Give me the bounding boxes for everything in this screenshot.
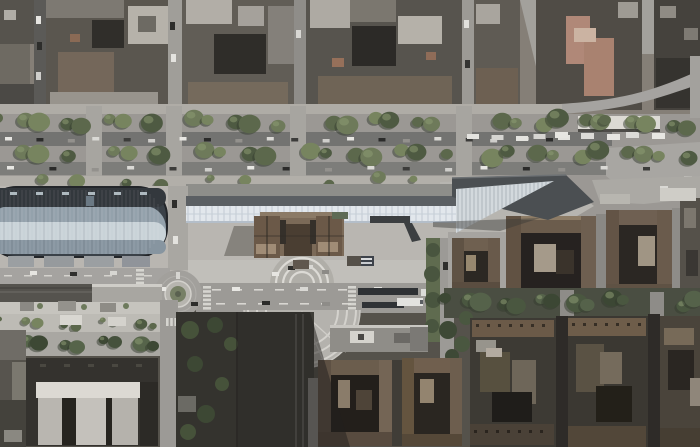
crossing-street (86, 106, 102, 176)
17 (92, 168, 99, 172)
5 (534, 134, 546, 139)
big-block-tower (38, 398, 62, 445)
hall-annex (8, 256, 34, 267)
5 (467, 134, 479, 139)
17 (445, 168, 452, 172)
9-highlight (137, 320, 142, 324)
green-roof-sliver (332, 212, 348, 219)
5 (555, 132, 568, 138)
7 (572, 323, 575, 326)
hall-roof-lower (0, 240, 166, 254)
block-roof (506, 216, 521, 300)
30-highlight (273, 121, 280, 126)
32-highlight (636, 148, 645, 155)
courtyard (92, 20, 124, 48)
30-highlight (230, 116, 238, 122)
7 (638, 323, 641, 326)
32 (148, 146, 170, 165)
6 (114, 192, 121, 195)
5 (581, 133, 594, 139)
old-station-gap (310, 220, 316, 244)
big-block-tower (112, 398, 138, 445)
32 (653, 151, 665, 161)
courtyard-dark (556, 250, 574, 274)
32-highlight (197, 144, 206, 151)
car (465, 60, 470, 68)
17 (127, 166, 134, 170)
roof-light (398, 16, 442, 44)
32-highlight (683, 152, 691, 158)
roof-mid (268, 6, 294, 64)
rooftop-door (358, 334, 364, 340)
roof-white (660, 188, 696, 201)
car (232, 287, 240, 291)
20 (92, 137, 99, 141)
30 (141, 114, 163, 133)
32-highlight (63, 151, 70, 156)
lane-dash (104, 275, 112, 277)
6 (140, 192, 147, 195)
yard-structure (58, 301, 76, 311)
shadow-tree (215, 377, 229, 391)
courtyard-building (534, 244, 556, 272)
20 (235, 139, 242, 143)
bus-windshield (420, 300, 423, 304)
street-vertical (462, 0, 474, 110)
32 (547, 150, 559, 160)
roofs-row-dark (0, 284, 92, 302)
roof-light (600, 352, 622, 384)
roof-salmon (584, 38, 614, 96)
shadow-tree (181, 321, 199, 339)
roof-light (4, 430, 22, 442)
courtyard (138, 16, 156, 32)
15 (439, 293, 451, 303)
30-highlight (339, 118, 349, 126)
courtyard (492, 392, 532, 422)
yard-structure (100, 303, 116, 312)
20 (124, 138, 131, 142)
17 (643, 167, 650, 171)
30 (271, 120, 286, 132)
roof-light (618, 2, 638, 18)
block-roof (402, 358, 414, 446)
roof-edge (92, 284, 162, 287)
32 (360, 148, 382, 167)
lane-dash (144, 275, 152, 277)
4 (170, 318, 173, 326)
15 (580, 299, 595, 311)
car (296, 30, 301, 38)
6 (203, 303, 211, 306)
crossing-street (166, 106, 182, 176)
5 (626, 132, 639, 138)
courtyard (352, 26, 396, 66)
30-highlight (425, 118, 433, 124)
32-highlight (548, 151, 553, 155)
30 (202, 115, 214, 125)
car (443, 262, 448, 270)
20 (36, 138, 43, 142)
4 (136, 277, 144, 280)
building (576, 344, 604, 392)
4 (136, 282, 144, 285)
block-roof (568, 318, 646, 336)
14 (372, 171, 386, 183)
14 (69, 174, 85, 188)
14 (239, 175, 251, 185)
block-roof (581, 216, 596, 300)
roof-brown (476, 68, 518, 106)
shadow-tree (207, 317, 223, 333)
roof-mid (350, 0, 396, 22)
roof-light (310, 0, 350, 28)
17 (283, 167, 290, 171)
6 (203, 294, 211, 297)
street-vertical (294, 0, 306, 110)
big-block-edge (140, 382, 158, 446)
17 (247, 166, 254, 170)
7 (509, 324, 512, 327)
32 (528, 145, 548, 162)
garden-bush (81, 304, 87, 310)
roof-brown (188, 82, 288, 106)
7 (594, 323, 597, 326)
block-roof (402, 434, 462, 446)
roof-light (684, 208, 696, 228)
lane-dash (254, 289, 263, 291)
lane-dash (24, 275, 32, 277)
5 (492, 135, 504, 140)
20 (204, 138, 211, 142)
6 (348, 286, 356, 289)
old-station-center (284, 224, 312, 256)
32 (320, 148, 332, 158)
30-highlight (144, 116, 154, 124)
street-tree (454, 336, 470, 352)
5-highlight (627, 117, 634, 123)
9 (69, 340, 85, 354)
courtyard (596, 386, 632, 422)
street-vertical (642, 0, 654, 54)
9 (100, 317, 106, 322)
rooftop-unit (410, 327, 428, 351)
7 (474, 430, 477, 433)
32 (441, 149, 453, 159)
5 (88, 364, 94, 367)
17 (523, 167, 530, 171)
street-gap (392, 360, 402, 446)
street-tree (439, 321, 457, 339)
block-roof (660, 428, 700, 447)
roof-red (332, 58, 344, 67)
bus-white (397, 298, 423, 306)
9 (21, 317, 30, 325)
4 (136, 273, 144, 276)
hall-roof-topband (0, 188, 166, 207)
6 (62, 192, 69, 195)
32-highlight (109, 147, 114, 151)
7 (542, 324, 545, 327)
30 (423, 117, 440, 131)
6 (348, 299, 356, 302)
6 (203, 290, 211, 293)
tower-gap (62, 398, 76, 445)
5 (652, 133, 665, 139)
roof-light (600, 194, 630, 204)
block-roof (450, 358, 462, 446)
30-highlight (105, 115, 110, 119)
30 (380, 112, 400, 129)
courtyard-building (638, 236, 655, 266)
30 (71, 118, 91, 135)
canopy-dark-band (186, 196, 460, 207)
street-vertical (556, 316, 568, 447)
15 (617, 295, 629, 305)
15 (470, 293, 492, 312)
car (30, 271, 37, 275)
15 (543, 294, 560, 308)
lane-dash (237, 303, 246, 305)
7 (605, 323, 608, 326)
aerial-photo (0, 0, 700, 447)
7 (496, 430, 499, 433)
30 (115, 114, 132, 128)
14-highlight (208, 175, 212, 178)
17 (170, 167, 177, 171)
7 (498, 324, 501, 327)
15 (506, 298, 526, 315)
32-highlight (17, 146, 25, 152)
5 (636, 116, 656, 133)
20 (403, 139, 410, 143)
32 (214, 147, 226, 157)
7 (531, 324, 534, 327)
street-vertical (690, 56, 700, 118)
15-highlight (605, 292, 614, 299)
4 (166, 318, 169, 326)
14 (122, 179, 132, 188)
6 (203, 299, 211, 302)
17 (49, 167, 56, 171)
roof-salmon-light (574, 28, 596, 42)
lane-dash (275, 289, 284, 291)
20 (378, 138, 385, 142)
building-block (12, 362, 26, 402)
roof-red (70, 34, 80, 42)
old-station-face (256, 244, 276, 254)
roof-light (4, 10, 16, 20)
30-highlight (511, 119, 516, 123)
roof-red (426, 52, 436, 60)
9 (32, 318, 44, 328)
5 (607, 134, 620, 140)
car (70, 272, 77, 276)
32-highlight (590, 143, 600, 151)
roof-light (238, 6, 264, 26)
building-block (0, 0, 34, 44)
roof-mid (46, 0, 124, 18)
annex (293, 260, 309, 269)
roof-light (466, 255, 476, 271)
30 (510, 118, 522, 128)
32 (254, 147, 276, 166)
30 (239, 115, 261, 134)
tower-gap (106, 398, 112, 445)
car (300, 287, 308, 291)
9-highlight (61, 341, 66, 345)
9-highlight (100, 337, 105, 341)
big-block-tower (76, 398, 106, 445)
9 (135, 319, 147, 329)
15-highlight (500, 299, 507, 304)
20 (148, 139, 155, 143)
car (170, 22, 175, 30)
roof-light (186, 0, 232, 24)
roundabout-center (175, 291, 181, 297)
aerial-photo-svg (0, 0, 700, 447)
15-highlight (537, 295, 542, 299)
roof-light (664, 328, 694, 345)
17 (481, 166, 488, 170)
6 (348, 294, 356, 297)
20 (434, 137, 441, 141)
17 (7, 166, 14, 170)
7 (507, 430, 510, 433)
7 (487, 324, 490, 327)
garden-shed (108, 317, 126, 326)
lane-dash (84, 275, 92, 277)
9 (30, 335, 48, 350)
17 (601, 166, 608, 170)
old-station-face (318, 242, 338, 252)
9-highlight (22, 318, 26, 321)
32 (634, 146, 654, 163)
street-vertical (648, 314, 660, 447)
lane-dash (124, 275, 132, 277)
car (191, 302, 198, 306)
17 (403, 167, 410, 171)
6 (203, 286, 211, 289)
hall-vent (86, 196, 94, 206)
32 (500, 145, 515, 157)
5 (678, 120, 696, 135)
courtyard-building (420, 379, 434, 403)
5 (136, 364, 142, 367)
30-highlight (19, 114, 27, 120)
6 (10, 192, 17, 195)
hall-annex (84, 256, 114, 267)
32-highlight (321, 149, 326, 153)
yard-structure (20, 302, 34, 311)
courtyard (686, 250, 698, 276)
32-highlight (363, 150, 373, 158)
32 (61, 150, 76, 162)
20 (68, 139, 75, 143)
roof-brown (58, 52, 114, 96)
20 (291, 138, 298, 142)
32-highlight (409, 146, 418, 153)
6 (203, 307, 211, 310)
14 (409, 176, 417, 183)
building-block (0, 44, 30, 84)
lane-dash (216, 303, 225, 305)
block-roof (568, 426, 646, 447)
7 (520, 324, 523, 327)
17 (205, 168, 212, 172)
14-highlight (123, 180, 128, 184)
block-roof (472, 320, 554, 337)
courtyard-building (356, 390, 372, 410)
17 (367, 166, 374, 170)
car (262, 301, 270, 305)
shadow-tree (187, 356, 203, 372)
5-highlight (669, 121, 675, 126)
annex (347, 256, 361, 266)
32-highlight (502, 146, 509, 151)
20 (323, 139, 330, 143)
rooftop-unit (394, 333, 412, 343)
32-highlight (151, 148, 161, 156)
hall-annex (44, 256, 74, 267)
courtyard-building (338, 380, 350, 408)
car (36, 16, 41, 24)
car (322, 302, 330, 306)
6 (348, 290, 356, 293)
roof-light (486, 348, 502, 357)
6 (36, 192, 43, 195)
30-highlight (62, 119, 69, 124)
9 (149, 323, 157, 329)
20 (180, 137, 187, 141)
4 (136, 269, 144, 272)
7 (540, 430, 543, 433)
30 (28, 113, 50, 132)
32 (681, 151, 698, 165)
hall-annex (122, 256, 150, 267)
7 (616, 323, 619, 326)
7 (485, 430, 488, 433)
lane-dash (44, 275, 52, 277)
14-highlight (38, 175, 43, 179)
car (110, 271, 117, 275)
32 (587, 141, 609, 160)
car (171, 54, 176, 62)
platform-strip (186, 184, 460, 196)
5 (112, 364, 118, 367)
9 (147, 341, 159, 351)
7 (627, 323, 630, 326)
lane-dash (300, 303, 309, 305)
32 (195, 142, 215, 159)
14 (37, 174, 49, 184)
5 (599, 115, 611, 125)
20 (546, 138, 553, 142)
roof-light (476, 4, 500, 24)
car (272, 272, 279, 276)
7 (476, 324, 479, 327)
20 (267, 137, 274, 141)
car (172, 200, 177, 208)
median-tree (424, 266, 440, 282)
6 (88, 192, 95, 195)
roof-brown (318, 76, 452, 106)
light-gap (178, 396, 196, 412)
30-highlight (187, 112, 196, 119)
big-block-white-band (36, 382, 140, 398)
car (36, 72, 41, 80)
car (173, 236, 178, 244)
